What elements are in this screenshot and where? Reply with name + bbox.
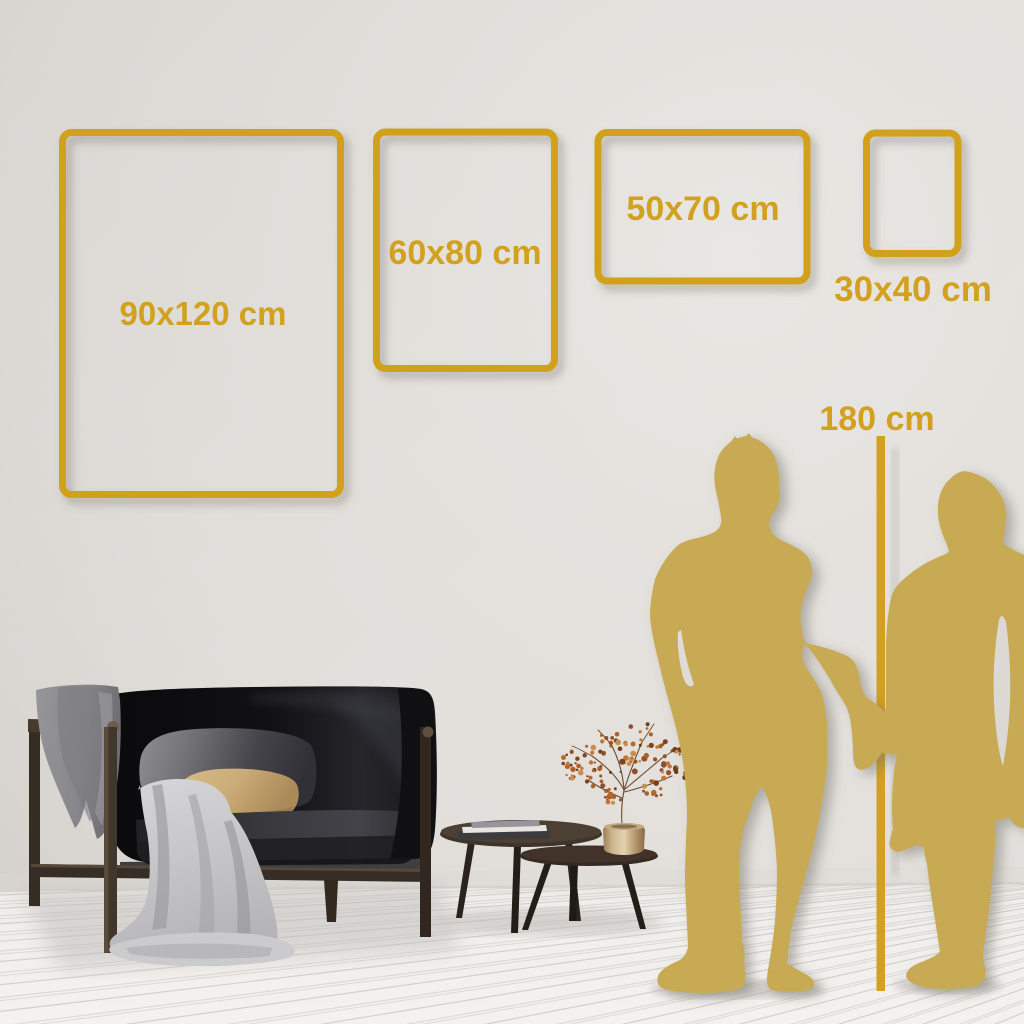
svg-text:60x80 cm: 60x80 cm: [388, 234, 541, 272]
svg-text:30x40 cm: 30x40 cm: [834, 270, 992, 309]
svg-text:180 cm: 180 cm: [819, 400, 934, 438]
svg-text:90x120 cm: 90x120 cm: [120, 295, 287, 332]
svg-text:50x70 cm: 50x70 cm: [626, 190, 779, 228]
